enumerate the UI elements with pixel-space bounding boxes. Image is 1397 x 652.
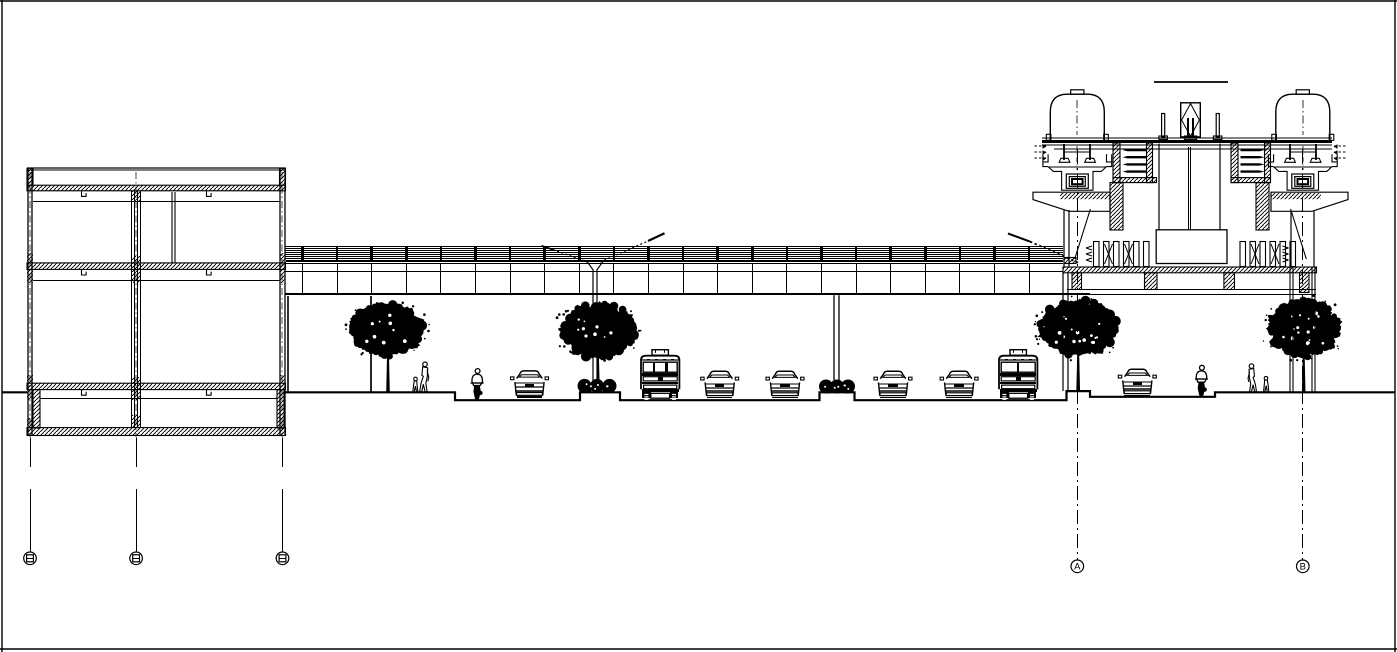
svg-text:B: B — [1300, 562, 1306, 573]
svg-text:A: A — [1074, 562, 1081, 573]
